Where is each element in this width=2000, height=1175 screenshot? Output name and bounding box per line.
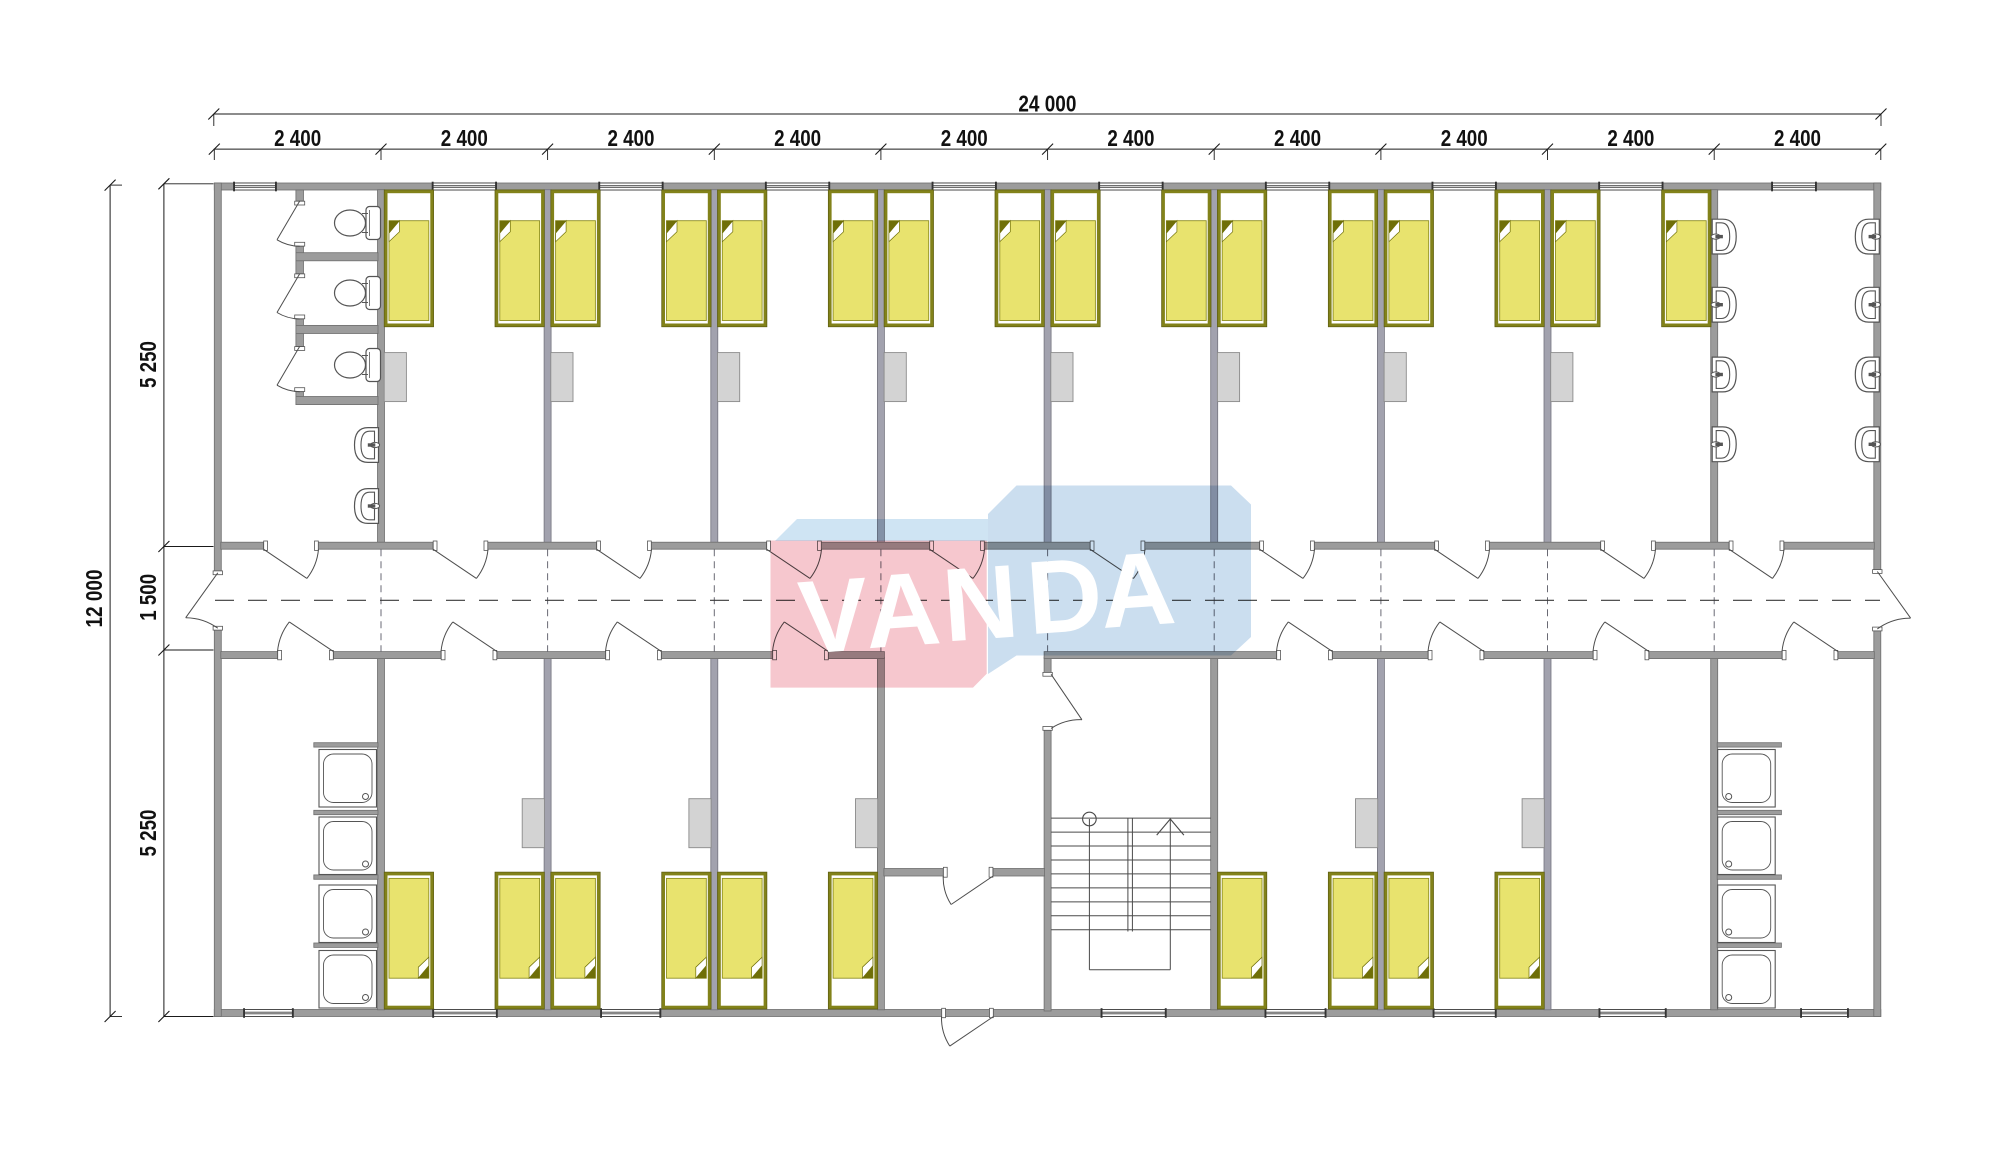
svg-text:2 400: 2 400: [774, 125, 821, 151]
svg-text:12 000: 12 000: [81, 570, 107, 628]
svg-text:D: D: [1023, 536, 1106, 657]
svg-text:2 400: 2 400: [1774, 125, 1821, 151]
svg-text:2 400: 2 400: [441, 125, 488, 151]
svg-text:A: A: [1096, 530, 1179, 651]
svg-text:V: V: [795, 556, 872, 677]
svg-text:24 000: 24 000: [1018, 91, 1076, 117]
svg-text:1 500: 1 500: [135, 574, 161, 621]
svg-text:2 400: 2 400: [1107, 125, 1154, 151]
svg-text:2 400: 2 400: [941, 125, 988, 151]
svg-text:N: N: [939, 544, 1022, 665]
svg-text:2 400: 2 400: [1274, 125, 1321, 151]
svg-text:5 250: 5 250: [135, 810, 161, 857]
svg-text:2 400: 2 400: [1607, 125, 1654, 151]
svg-text:2 400: 2 400: [607, 125, 654, 151]
svg-text:5 250: 5 250: [135, 341, 161, 388]
svg-text:A: A: [861, 550, 944, 671]
svg-text:2 400: 2 400: [274, 125, 321, 151]
svg-text:2 400: 2 400: [1441, 125, 1488, 151]
